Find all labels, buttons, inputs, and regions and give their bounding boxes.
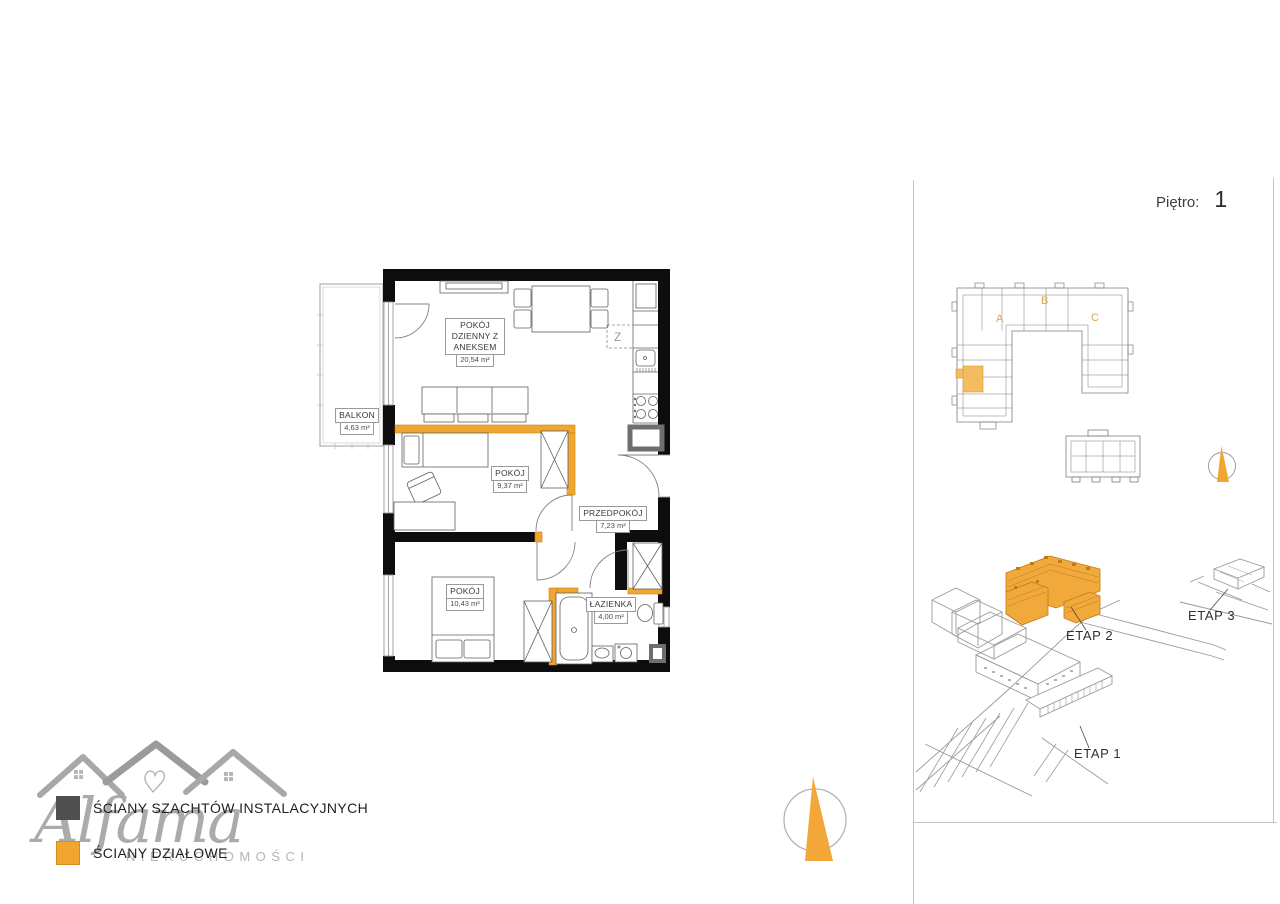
room-label-bathroom: ŁAZIENKA 4,00 m² bbox=[584, 597, 638, 624]
graphics-layer: Z bbox=[0, 0, 1280, 904]
north-needle bbox=[1217, 446, 1229, 482]
stage-label-etap3: ETAP 3 bbox=[1188, 608, 1235, 623]
legend-label: ŚCIANY SZACHTÓW INSTALACYJNYCH bbox=[93, 800, 368, 816]
legend-item-partition-walls: ŚCIANY DZIAŁOWE bbox=[56, 841, 368, 865]
floorplan-page: { "floor": {"label": "Piętro:", "value":… bbox=[0, 0, 1280, 904]
room-label-room937: POKÓJ 9,37 m² bbox=[486, 466, 534, 493]
logo-roofs bbox=[40, 744, 284, 795]
north-compass-small bbox=[1209, 446, 1236, 482]
room-label-room1043: POKÓJ 10,43 m² bbox=[442, 584, 488, 611]
kitchen-annex bbox=[607, 281, 658, 423]
room-name: POKÓJ DZIENNY Z ANEKSEM bbox=[445, 318, 505, 355]
partition-wall-swatch bbox=[56, 841, 80, 865]
etap3-building bbox=[1190, 559, 1270, 600]
section-c-label: C bbox=[1091, 312, 1099, 324]
dishwasher-mark: Z bbox=[614, 330, 621, 344]
floor-indicator: Piętro: 1 bbox=[1156, 186, 1227, 213]
floor-label: Piętro: bbox=[1156, 194, 1199, 211]
room-area: 4,63 m² bbox=[340, 422, 373, 435]
room-name: BALKON bbox=[335, 408, 379, 423]
floor-number: 1 bbox=[1214, 186, 1227, 213]
stage-label-etap1: ETAP 1 bbox=[1074, 746, 1121, 761]
room-area: 20,54 m² bbox=[456, 354, 494, 367]
room-label-hall: PRZEDPOKÓJ 7,23 m² bbox=[578, 506, 648, 533]
room-area: 10,43 m² bbox=[446, 598, 484, 611]
etap1-slab-building bbox=[1026, 668, 1112, 717]
section-a-label: A bbox=[996, 313, 1004, 325]
room-name: POKÓJ bbox=[491, 466, 529, 481]
room-area: 7,23 m² bbox=[596, 520, 629, 533]
room-label-living: POKÓJ DZIENNY Z ANEKSEM 20,54 m² bbox=[445, 318, 505, 367]
room-label-balcony: BALKON 4,63 m² bbox=[329, 408, 385, 435]
highlighted-unit bbox=[963, 366, 983, 392]
room-name: POKÓJ bbox=[446, 584, 484, 599]
legend-label: ŚCIANY DZIAŁOWE bbox=[93, 845, 228, 861]
legend-item-shaft-walls: ŚCIANY SZACHTÓW INSTALACYJNYCH bbox=[56, 796, 368, 820]
key-plan-section-letters: A B C bbox=[996, 295, 1099, 325]
logo-heart bbox=[145, 771, 165, 792]
furniture-hall bbox=[633, 543, 662, 589]
north-compass-large bbox=[784, 777, 846, 861]
shaft-wall-swatch bbox=[56, 796, 80, 820]
room-name: ŁAZIENKA bbox=[586, 597, 637, 612]
room-area: 4,00 m² bbox=[594, 611, 627, 624]
etap2-building bbox=[1006, 556, 1100, 625]
room-name: PRZEDPOKÓJ bbox=[579, 506, 647, 521]
stage-label-etap2: ETAP 2 bbox=[1066, 628, 1113, 643]
parking-stalls bbox=[920, 703, 1068, 792]
key-plan-lower-building bbox=[1066, 430, 1140, 482]
wall-type-legend: ŚCIANY SZACHTÓW INSTALACYJNYCH ŚCIANY DZ… bbox=[56, 796, 368, 886]
furniture-room-937 bbox=[394, 431, 568, 530]
section-b-label: B bbox=[1041, 295, 1048, 307]
room-area: 9,37 m² bbox=[493, 480, 526, 493]
